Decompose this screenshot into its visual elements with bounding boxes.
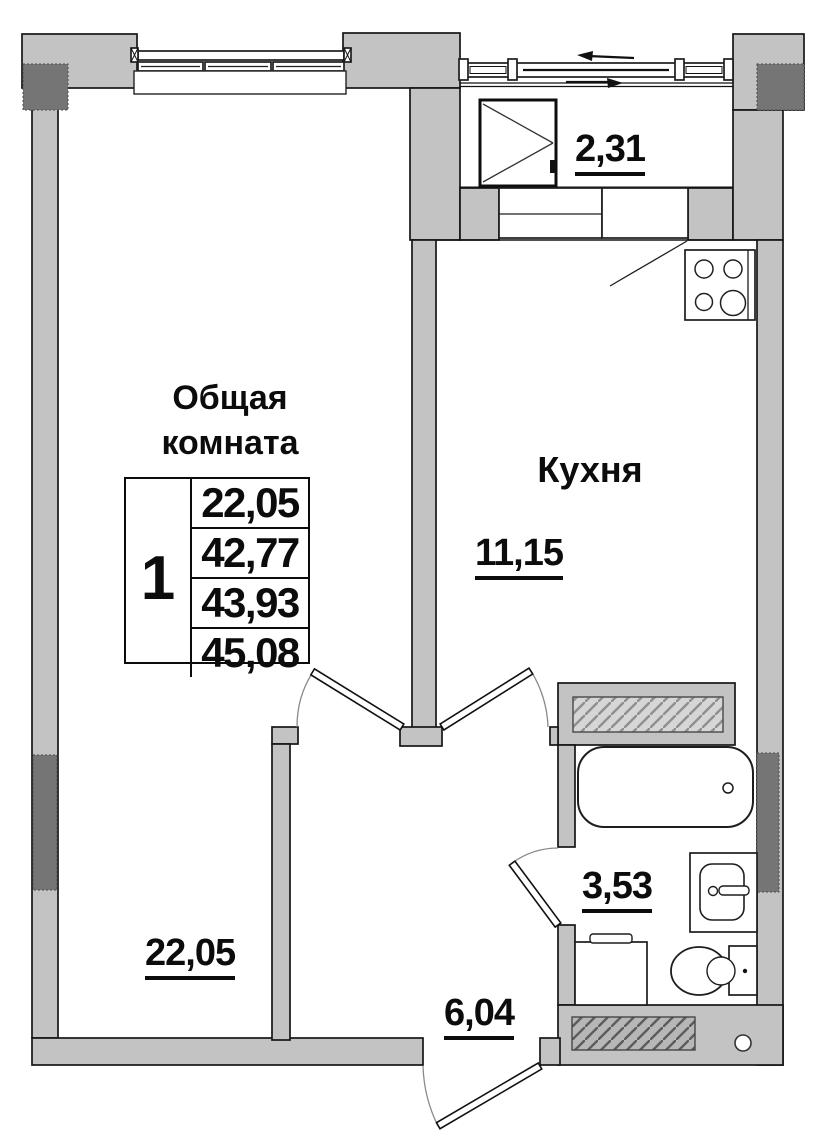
- living-room-label: Общая комната: [124, 376, 336, 466]
- kitchen-door: [440, 668, 548, 730]
- living-room-door: [297, 669, 404, 730]
- bathroom-area-value: 3,53: [582, 867, 652, 913]
- living-room-window: [131, 48, 351, 94]
- floor-plan: Общая комната 1 22,05 42,77 43,93 45,08 …: [0, 0, 828, 1147]
- area-table-value: 45,08: [192, 629, 308, 677]
- area-table-value: 42,77: [192, 529, 308, 579]
- living-room-label-line1: Общая: [124, 376, 336, 421]
- sink-icon: [690, 853, 757, 932]
- kitchen-label: Кухня: [500, 452, 680, 488]
- bathtub-icon: [578, 747, 753, 827]
- stove-icon: [610, 241, 755, 320]
- vent-shaft-top-icon: [573, 697, 723, 732]
- bathroom-door: [509, 848, 561, 927]
- wall-duct-circle: [735, 1035, 751, 1051]
- balcony-area-value: 2,31: [575, 130, 645, 176]
- unit-number-cell: 1: [126, 479, 192, 677]
- hallway-area-value: 6,04: [444, 994, 514, 1040]
- vent-shaft-bottom-icon: [572, 1017, 695, 1050]
- living-room-area-value: 22,05: [145, 934, 235, 980]
- washing-machine-icon: [575, 934, 647, 1005]
- balcony-casement-symbol: [480, 100, 556, 186]
- area-table-value: 43,93: [192, 579, 308, 629]
- entrance-door: [423, 1063, 542, 1129]
- kitchen-area-value: 11,15: [475, 534, 563, 580]
- toilet-icon: [671, 946, 757, 995]
- living-room-label-line2: комната: [124, 421, 336, 466]
- area-table-value: 22,05: [192, 479, 308, 529]
- area-summary-table: 1 22,05 42,77 43,93 45,08: [124, 477, 310, 664]
